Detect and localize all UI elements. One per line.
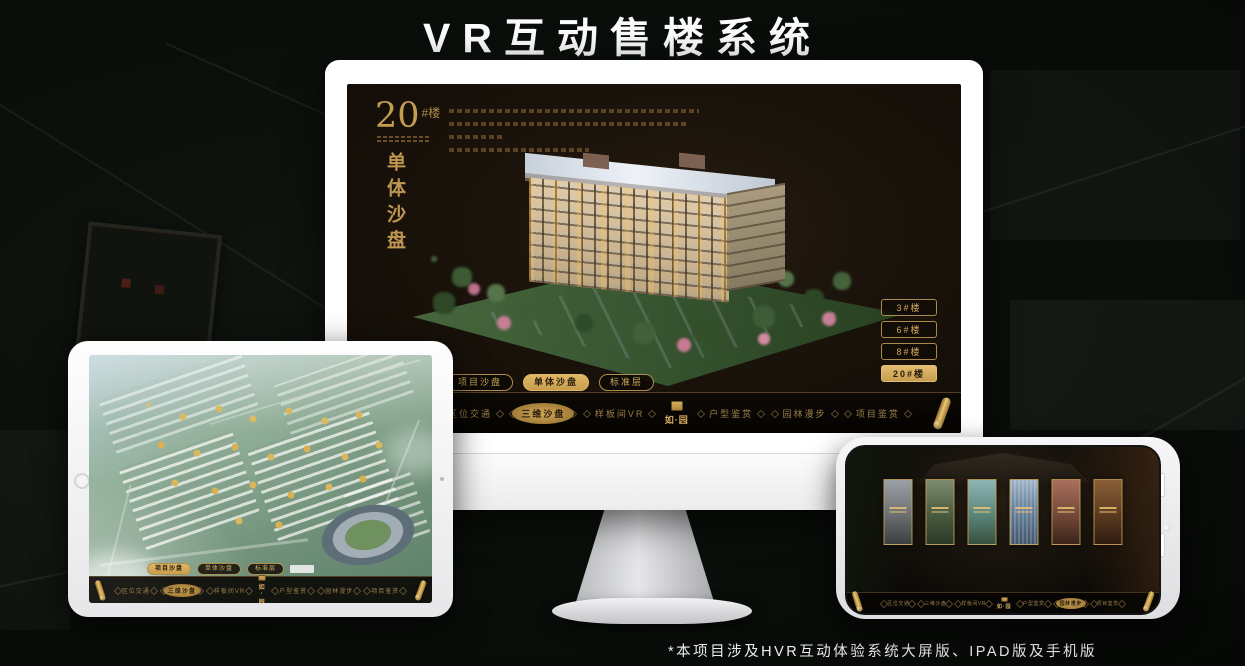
- monitor-nav-item-floorplans[interactable]: 户型鉴赏: [700, 403, 762, 424]
- building-number-suffix: #楼: [422, 104, 441, 121]
- phone-navbar: 区位交通 三维沙盘 样板间VR 如·园 户型鉴赏 园林漫步 项目鉴赏: [847, 592, 1159, 613]
- phone-nav-item-garden-walk[interactable]: 园林漫步: [1056, 598, 1086, 609]
- tablet-nav-item-project-view[interactable]: 项目鉴赏: [366, 584, 404, 597]
- logo-text: 如·园: [258, 582, 266, 604]
- panorama-card[interactable]: [884, 479, 913, 545]
- panorama-card[interactable]: [1052, 479, 1081, 545]
- bg-photo-block: [1010, 300, 1245, 430]
- tablet-tab-single-sandtable[interactable]: 单体沙盘: [197, 563, 241, 575]
- tablet-nav-item-3d-sandtable[interactable]: 三维沙盘: [163, 584, 201, 597]
- panorama-card[interactable]: [926, 479, 955, 545]
- headline-vertical-title: 单体沙盘: [381, 152, 408, 256]
- monitor-nav-item-project-view[interactable]: 项目鉴赏: [847, 403, 909, 424]
- model-roof-cap: [583, 153, 609, 170]
- phone-nav-item-floorplans[interactable]: 户型鉴赏: [1019, 598, 1049, 609]
- tablet-camera-dot: [440, 477, 444, 481]
- panorama-card[interactable]: [968, 479, 997, 545]
- tab-project-sandtable[interactable]: 项目沙盘: [447, 374, 513, 391]
- building-model: [413, 136, 903, 386]
- tablet-nav-logo: 如·园: [258, 575, 266, 604]
- home-button[interactable]: [74, 473, 90, 489]
- building-button-3[interactable]: 3#楼: [881, 299, 937, 316]
- monitor-stand-base: [552, 598, 752, 624]
- logo-text: 如·园: [997, 603, 1012, 610]
- bg-photo-block: [0, 430, 70, 630]
- scroll-icon[interactable]: [933, 396, 952, 427]
- building-button-8[interactable]: 8#楼: [881, 343, 937, 360]
- monitor-nav-item-garden-walk[interactable]: 园林漫步: [774, 403, 836, 424]
- monitor-stand-neck: [575, 505, 715, 605]
- tablet-nav-item-location[interactable]: 区位交通: [117, 584, 155, 597]
- building-button-group: 3#楼 6#楼 8#楼 20#楼: [881, 294, 937, 387]
- page-title: VR互动售楼系统: [0, 4, 1245, 64]
- panorama-card[interactable]: [1010, 479, 1039, 545]
- tablet-navbar: 区位交通 三维沙盘 样板间VR 如·园 户型鉴赏 园林漫步 项目鉴赏: [89, 576, 432, 603]
- scroll-icon[interactable]: [851, 591, 863, 611]
- scroll-icon[interactable]: [415, 580, 427, 600]
- phone-nav-item-project-view[interactable]: 项目鉴赏: [1093, 598, 1123, 609]
- tab-single-sandtable[interactable]: 单体沙盘: [523, 374, 589, 391]
- tablet-tab-group: 项目沙盘 单体沙盘 标准层: [147, 563, 314, 575]
- model-trees: [431, 256, 437, 262]
- seal-icon: [258, 575, 266, 581]
- tablet-nav-item-garden-walk[interactable]: 园林漫步: [320, 584, 358, 597]
- tab-standard-floor[interactable]: 标准层: [599, 374, 654, 391]
- logo-text: 如·园: [665, 413, 689, 426]
- scroll-icon[interactable]: [94, 580, 106, 600]
- tablet-tab-project-sandtable[interactable]: 项目沙盘: [147, 563, 191, 575]
- phone-nav-item-3d-sandtable[interactable]: 三维沙盘: [920, 598, 950, 609]
- phone-screen: 区位交通 三维沙盘 样板间VR 如·园 户型鉴赏 园林漫步 项目鉴赏: [845, 445, 1161, 615]
- page: VR互动售楼系统 20 #楼 单体沙盘: [0, 0, 1245, 666]
- phone: 区位交通 三维沙盘 样板间VR 如·园 户型鉴赏 园林漫步 项目鉴赏: [836, 437, 1180, 619]
- tablet-tooltip-chip: [290, 565, 314, 573]
- phone-nav-logo: 如·园: [997, 597, 1012, 610]
- model-window-lights: [529, 177, 729, 302]
- monitor-nav-item-showroom-vr[interactable]: 样板间VR: [586, 403, 654, 424]
- building-button-20[interactable]: 20#楼: [881, 365, 937, 382]
- monitor-nav-logo: 如·园: [665, 401, 689, 426]
- model-building: [521, 148, 791, 308]
- tablet-screen: 项目沙盘 单体沙盘 标准层 区位交通 三维沙盘 样板间VR 如·园 户型鉴赏 园…: [89, 355, 432, 603]
- panorama-card[interactable]: [1094, 479, 1123, 545]
- phone-nav-item-location[interactable]: 区位交通: [883, 598, 913, 609]
- seal-icon: [671, 401, 683, 411]
- scroll-icon[interactable]: [1143, 591, 1155, 611]
- tablet-tab-standard-floor[interactable]: 标准层: [247, 563, 284, 575]
- building-number: 20: [375, 98, 420, 134]
- bg-photo-block: [990, 70, 1240, 240]
- monitor-nav-item-3d-sandtable[interactable]: 三维沙盘: [512, 403, 574, 424]
- phone-camera-dot: [1163, 524, 1171, 532]
- sandtable-tab-group: 项目沙盘 单体沙盘 标准层: [447, 374, 654, 391]
- model-roof-cap: [679, 153, 705, 170]
- seal-icon: [1001, 597, 1008, 602]
- building-button-6[interactable]: 6#楼: [881, 321, 937, 338]
- panorama-card-gallery: [884, 479, 1123, 545]
- bg-plaque-frame: [76, 221, 222, 358]
- tablet-nav-item-floorplans[interactable]: 户型鉴赏: [274, 584, 312, 597]
- footnote: *本项目涉及HVR互动体验系统大屏版、IPAD版及手机版: [668, 640, 1097, 661]
- tablet: 项目沙盘 单体沙盘 标准层 区位交通 三维沙盘 样板间VR 如·园 户型鉴赏 园…: [68, 341, 453, 617]
- phone-nav-item-showroom-vr[interactable]: 样板间VR: [957, 598, 989, 609]
- model-side-face: [727, 183, 785, 291]
- tablet-nav-item-showroom-vr[interactable]: 样板间VR: [209, 584, 250, 597]
